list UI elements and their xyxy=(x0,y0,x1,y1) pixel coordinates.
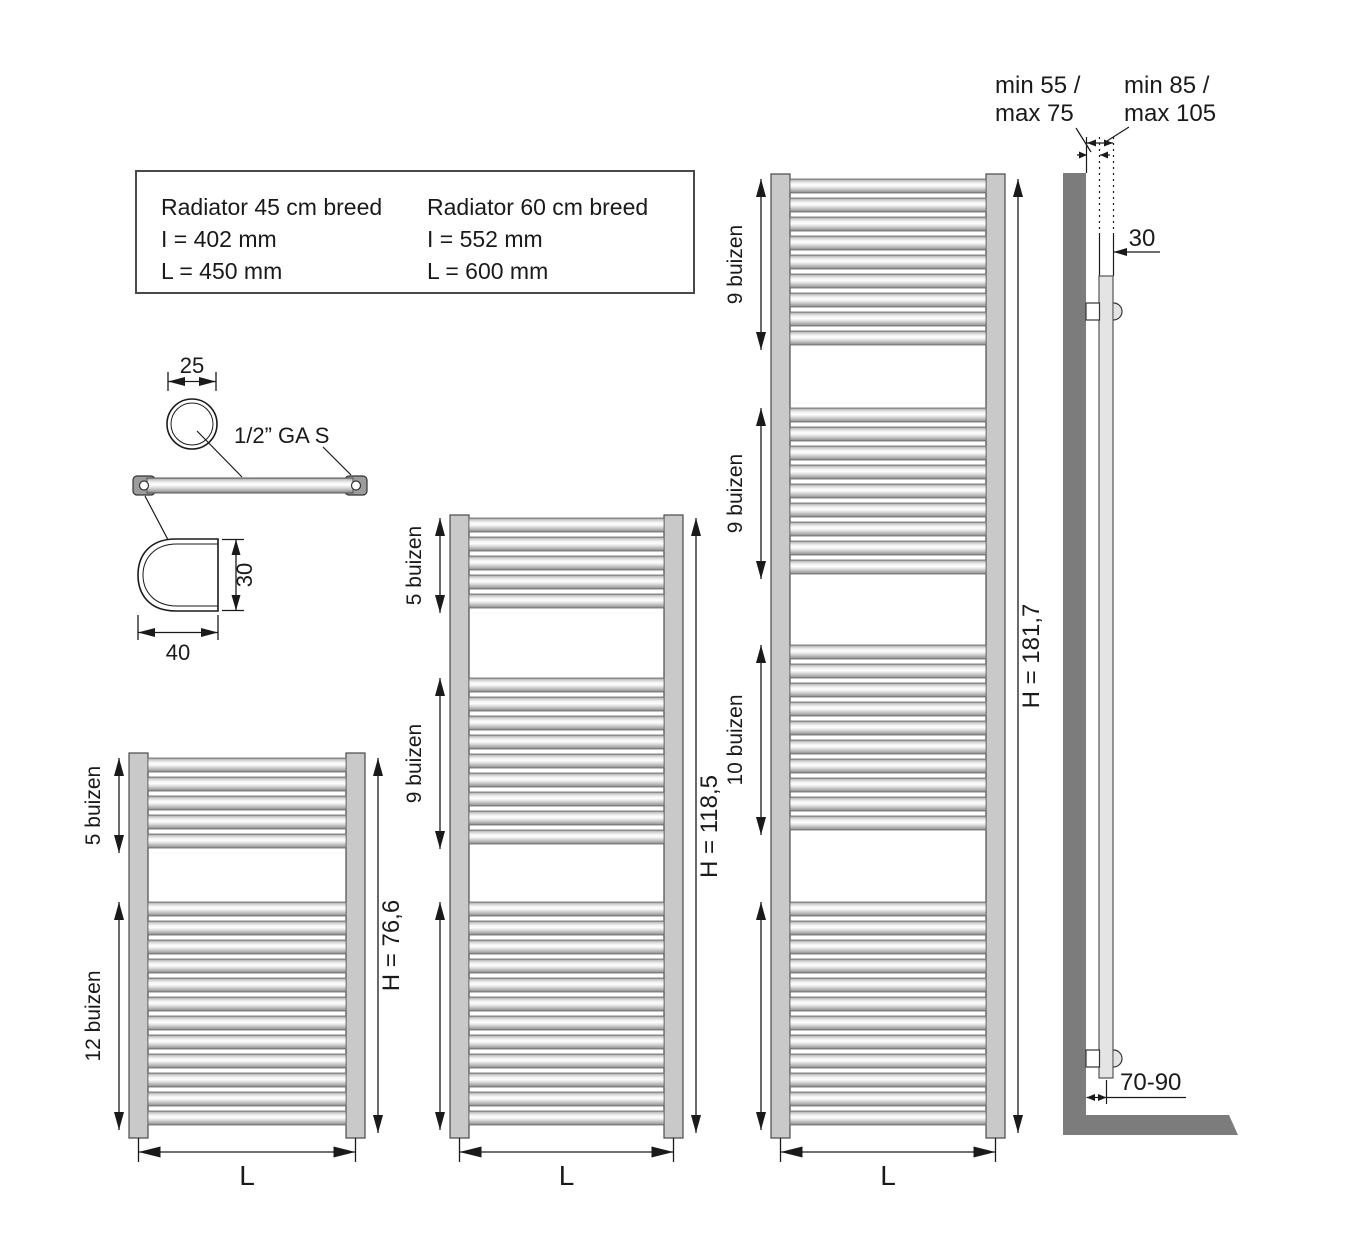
mount-reference-dotted-lines xyxy=(1100,137,1114,234)
front-distance-label-line1: min 85 / xyxy=(1124,72,1210,99)
radiator-tube xyxy=(469,1016,664,1030)
radiator-tube xyxy=(469,575,664,589)
arrowhead-down-icon xyxy=(691,1115,701,1133)
rail-profile-outer xyxy=(138,539,218,611)
radiator-tube xyxy=(790,446,986,460)
arrowhead-right-icon xyxy=(974,1147,996,1158)
radiator-tube xyxy=(148,1054,346,1068)
radiator-tube xyxy=(148,758,346,772)
tube-group-label: 5 buizen xyxy=(403,526,426,605)
floor xyxy=(1063,1115,1238,1135)
width-dimension-label: L xyxy=(559,1160,575,1191)
radiator-tube xyxy=(790,940,986,954)
arrowhead-left-icon xyxy=(781,1147,803,1158)
radiator-tube xyxy=(469,1073,664,1087)
height-dimension-label: H = 181,7 xyxy=(1018,604,1045,709)
radiator-tube xyxy=(790,217,986,231)
arrowhead-up-icon xyxy=(1013,179,1023,197)
radiator-left-rail xyxy=(129,753,148,1138)
arrowhead-right-icon xyxy=(334,1147,356,1158)
radiator-front-tall: 9 buizen9 buizen10 buizenH = 181,7L xyxy=(724,174,1045,1191)
profile-width-label: 40 xyxy=(166,640,190,665)
radiator-tube xyxy=(790,997,986,1011)
radiator-tube xyxy=(469,518,664,532)
leader-line-label-to-eyelet xyxy=(323,447,351,475)
radiator-tube xyxy=(469,556,664,570)
radiator-tube xyxy=(790,978,986,992)
arrowhead-right-icon xyxy=(199,377,216,386)
radiator-tube xyxy=(790,683,986,697)
wall-distance-label-line1: min 55 / xyxy=(995,72,1081,99)
radiator-tube xyxy=(790,740,986,754)
radiator-tube xyxy=(790,541,986,555)
arrowhead-up-icon xyxy=(756,645,766,663)
radiator-tube xyxy=(790,959,986,973)
radiator-tube xyxy=(469,697,664,711)
height-dimension-label: H = 76,6 xyxy=(378,900,405,991)
profile-depth-label: 30 xyxy=(1129,225,1156,252)
radiator-tube xyxy=(790,778,986,792)
radiator-tube xyxy=(790,503,986,517)
radiator-left-rail xyxy=(450,515,469,1138)
radiator-tube xyxy=(469,1111,664,1125)
radiator-tube xyxy=(790,759,986,773)
radiator-tube xyxy=(469,902,664,916)
left-eyelet-hole xyxy=(140,481,149,490)
radiator-tube xyxy=(148,1035,346,1049)
arrowhead-up-icon xyxy=(756,179,766,197)
radiator-tube xyxy=(469,754,664,768)
radiator-tube xyxy=(790,255,986,269)
radiator-tube xyxy=(148,796,346,810)
radiator-tube xyxy=(790,236,986,250)
fitting-size-label: 1/2” GA S xyxy=(234,423,329,448)
profile-edge-extension-lines xyxy=(1100,234,1114,276)
tube-group-label: 5 buizen xyxy=(82,766,105,845)
radiator-tube xyxy=(148,940,346,954)
side-view-drawing: min 55 / max 75 min 85 / max 105 30 70-9… xyxy=(995,72,1238,1135)
tube-group-label: 12 buizen xyxy=(82,970,105,1061)
arrowhead-left-icon xyxy=(138,628,155,637)
radiator-tube xyxy=(790,331,986,345)
arrowhead-right-icon xyxy=(1098,1094,1107,1101)
radiator-tube xyxy=(790,179,986,193)
tube-detail-drawing: 25 1/2” GA S 30 xyxy=(133,353,367,665)
arrowhead-right-icon xyxy=(652,1147,674,1158)
radiator-tube xyxy=(790,921,986,935)
radiator-tube xyxy=(148,834,346,848)
radiator-right-rail xyxy=(664,515,683,1138)
tube-group-label: 9 buizen xyxy=(403,724,426,803)
height-dimension-label: H = 118,5 xyxy=(696,775,723,878)
radiator-tube xyxy=(469,716,664,730)
arrowhead-down-icon xyxy=(756,1112,766,1130)
profile-height-label: 30 xyxy=(232,563,257,587)
arrowhead-up-icon xyxy=(114,902,124,920)
width-dimension-lines xyxy=(460,1138,674,1162)
arrowhead-down-icon xyxy=(756,817,766,835)
radiator-tube xyxy=(790,1035,986,1049)
bottom-bracket-knob xyxy=(1114,1050,1123,1067)
radiator-tube xyxy=(469,1054,664,1068)
tube-group-label: 9 buizen xyxy=(724,454,747,533)
arrowhead-down-icon xyxy=(1013,1115,1023,1133)
radiator-tube xyxy=(148,815,346,829)
radiator-tube xyxy=(790,902,986,916)
radiator-tube xyxy=(148,997,346,1011)
radiator-tube xyxy=(790,1092,986,1106)
arrowhead-up-icon xyxy=(232,540,241,556)
radiator-tube xyxy=(469,792,664,806)
radiator-tube xyxy=(148,902,346,916)
arrowhead-up-icon xyxy=(756,902,766,920)
radiator-left-rail xyxy=(771,174,790,1138)
radiator-front-small: 5 buizen12 buizenH = 76,6L xyxy=(82,753,405,1191)
arrowhead-left-icon xyxy=(168,377,185,386)
radiator-tube xyxy=(790,465,986,479)
radiator-tube xyxy=(148,777,346,791)
arrowhead-down-icon xyxy=(435,831,445,849)
radiator-right-rail xyxy=(346,753,365,1138)
tube-cross-section-outer xyxy=(167,399,217,449)
radiator-tube xyxy=(790,721,986,735)
floor-clearance-label: 70-90 xyxy=(1120,1069,1181,1096)
bottom-bracket xyxy=(1086,1050,1100,1067)
radiator-tube xyxy=(469,997,664,1011)
radiator-tube xyxy=(790,1016,986,1030)
arrowhead-left-icon xyxy=(1114,248,1128,256)
radiator-tube xyxy=(469,830,664,844)
arrowhead-left-icon xyxy=(1087,1094,1096,1101)
arrowhead-up-icon xyxy=(114,758,124,776)
radiator-right-rail xyxy=(986,174,1005,1138)
wall xyxy=(1063,173,1086,1135)
radiator-tube xyxy=(148,921,346,935)
radiator-tube xyxy=(469,940,664,954)
radiator-tube xyxy=(790,274,986,288)
radiator-side-profile xyxy=(1099,276,1113,1078)
radiator-tube xyxy=(469,678,664,692)
radiator-tube xyxy=(469,921,664,935)
arrowhead-left-icon xyxy=(460,1147,482,1158)
width-dimension-label: L xyxy=(880,1160,896,1191)
arrowhead-down-icon xyxy=(435,1112,445,1130)
radiator-tube xyxy=(469,811,664,825)
radiator-front-medium: 5 buizen9 buizenH = 118,5L xyxy=(403,515,723,1191)
arrowhead-left-icon xyxy=(139,1147,161,1158)
radiator-tube xyxy=(790,664,986,678)
radiator-tube xyxy=(469,1035,664,1049)
front-distance-label-line2: max 105 xyxy=(1124,100,1216,127)
leader-wall-distance xyxy=(1076,128,1091,152)
radiator-tube xyxy=(148,1092,346,1106)
radiator-tube xyxy=(790,797,986,811)
radiator-tube xyxy=(148,959,346,973)
arrowhead-down-icon xyxy=(435,595,445,613)
radiator-tube xyxy=(790,522,986,536)
arrowhead-down-icon xyxy=(232,595,241,611)
technical-drawing-canvas: Radiator 45 cm breed I = 402 mm L = 450 … xyxy=(0,0,1350,1237)
radiator-tube xyxy=(790,293,986,307)
radiator-tube xyxy=(790,198,986,212)
width-dimension-lines xyxy=(781,1138,996,1162)
radiator-tube xyxy=(790,702,986,716)
radiator-tube xyxy=(790,816,986,830)
tube-diameter-label: 25 xyxy=(180,353,204,378)
radiator-tube xyxy=(790,1073,986,1087)
leader-front-distance xyxy=(1107,127,1129,141)
top-bracket-knob xyxy=(1114,303,1123,320)
radiator-tube xyxy=(790,1111,986,1125)
radiator-tube xyxy=(469,978,664,992)
arrowhead-right-icon xyxy=(1079,152,1087,159)
radiator-tube xyxy=(469,537,664,551)
arrowhead-down-icon xyxy=(756,332,766,350)
radiator-tube xyxy=(790,484,986,498)
radiator-tube xyxy=(148,1016,346,1030)
arrowhead-down-icon xyxy=(756,561,766,579)
arrowhead-left-icon xyxy=(1100,152,1108,159)
arrowhead-up-icon xyxy=(756,408,766,426)
radiator-tube xyxy=(790,408,986,422)
arrowhead-up-icon xyxy=(435,902,445,920)
radiator-tube xyxy=(469,959,664,973)
radiator-tube xyxy=(790,1054,986,1068)
radiator-tube xyxy=(469,1092,664,1106)
arrowhead-down-icon xyxy=(114,1112,124,1130)
tube-side-view xyxy=(147,478,353,493)
width-dimension-label: L xyxy=(239,1160,255,1191)
tube-group-label: 10 buizen xyxy=(724,694,747,785)
arrowhead-down-icon xyxy=(373,1115,383,1133)
arrowhead-up-icon xyxy=(373,758,383,776)
tube-group-label: 9 buizen xyxy=(724,225,747,304)
radiator-tube xyxy=(148,1073,346,1087)
right-eyelet-hole xyxy=(352,481,361,490)
top-bracket xyxy=(1086,303,1100,320)
drawing-svg: 25 1/2” GA S 30 xyxy=(0,0,1350,1237)
radiator-tube xyxy=(469,773,664,787)
width-dimension-lines xyxy=(139,1138,356,1162)
radiator-tube xyxy=(148,978,346,992)
radiator-tube xyxy=(469,735,664,749)
radiator-tube xyxy=(790,312,986,326)
arrowhead-right-icon xyxy=(201,628,218,637)
wall-distance-label-line2: max 75 xyxy=(995,100,1074,127)
arrowhead-left-icon xyxy=(1087,140,1096,147)
arrowhead-up-icon xyxy=(691,518,701,536)
arrowhead-up-icon xyxy=(435,518,445,536)
radiator-tube xyxy=(790,645,986,659)
radiator-tube xyxy=(790,560,986,574)
radiator-tube xyxy=(148,1111,346,1125)
profile-width-dimension-lines xyxy=(138,615,218,640)
radiator-tube xyxy=(469,594,664,608)
arrowhead-up-icon xyxy=(435,678,445,696)
arrowhead-down-icon xyxy=(114,835,124,853)
radiator-tube xyxy=(790,427,986,441)
